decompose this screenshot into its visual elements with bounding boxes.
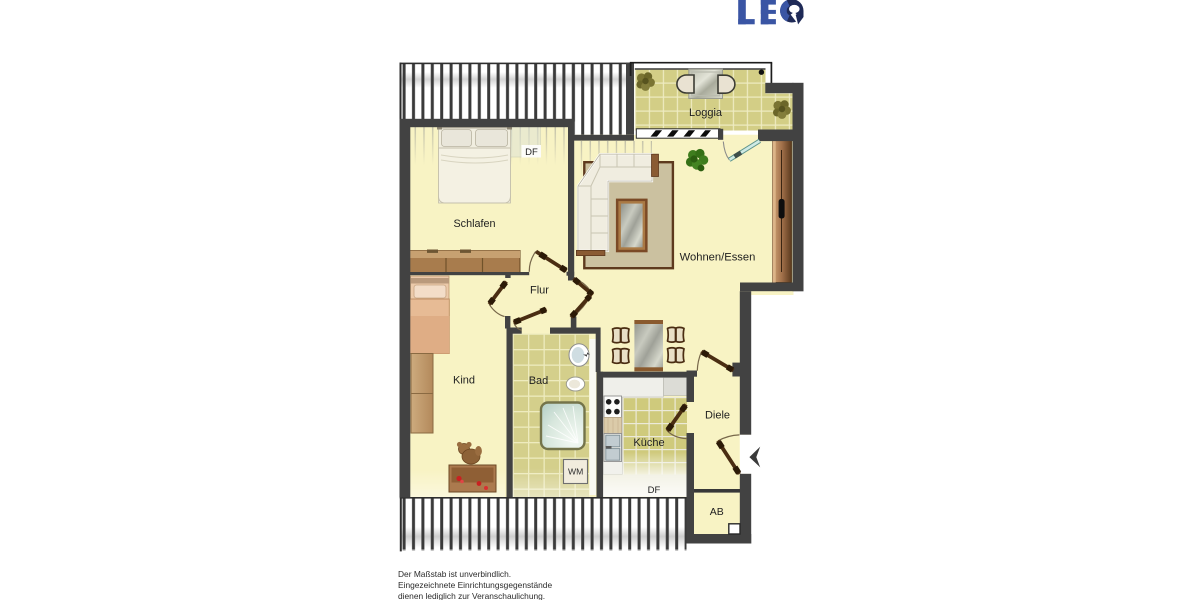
svg-text:Flur: Flur (530, 285, 549, 297)
svg-text:Küche: Küche (633, 437, 664, 449)
svg-text:AB: AB (710, 506, 724, 518)
svg-text:WM: WM (568, 467, 583, 477)
svg-text:Bad: Bad (529, 375, 549, 387)
svg-text:Kind: Kind (453, 375, 475, 387)
svg-text:Schlafen: Schlafen (453, 218, 495, 230)
svg-text:DF: DF (525, 147, 538, 158)
svg-text:Wohnen/Essen: Wohnen/Essen (680, 251, 756, 263)
svg-text:DF: DF (648, 485, 661, 496)
svg-text:Loggia: Loggia (689, 107, 723, 119)
svg-text:Diele: Diele (705, 410, 730, 422)
svg-text:Der Maßstab ist unverbindlich.: Der Maßstab ist unverbindlich. (398, 569, 511, 579)
svg-text:Eingezeichnete Einrichtungsgeg: Eingezeichnete Einrichtungsgegenstände (398, 580, 552, 590)
svg-text:dienen lediglich zur Veranscha: dienen lediglich zur Veranschaulichung. (398, 591, 545, 600)
